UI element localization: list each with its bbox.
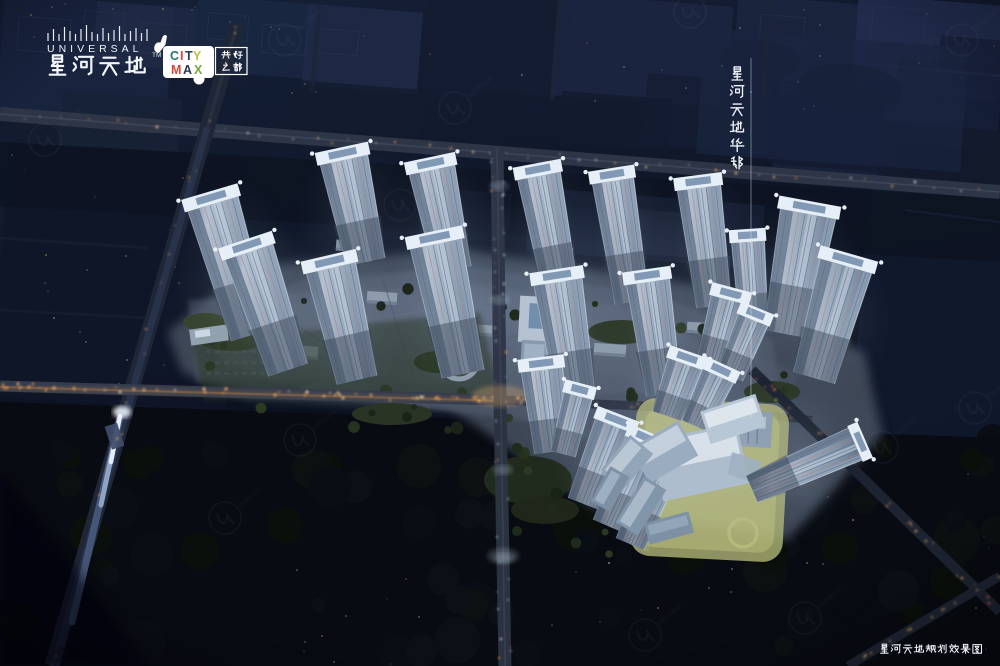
svg-text:C: C (170, 49, 179, 63)
svg-text:T: T (185, 49, 193, 63)
svg-text:A: A (183, 63, 192, 77)
svg-text:UNIVERSAL: UNIVERSAL (47, 43, 143, 55)
svg-text:Y: Y (193, 49, 202, 63)
svg-text:X: X (194, 63, 203, 77)
svg-text:I: I (180, 49, 183, 63)
svg-text:TM: TM (152, 52, 161, 59)
svg-text:M: M (171, 63, 181, 77)
